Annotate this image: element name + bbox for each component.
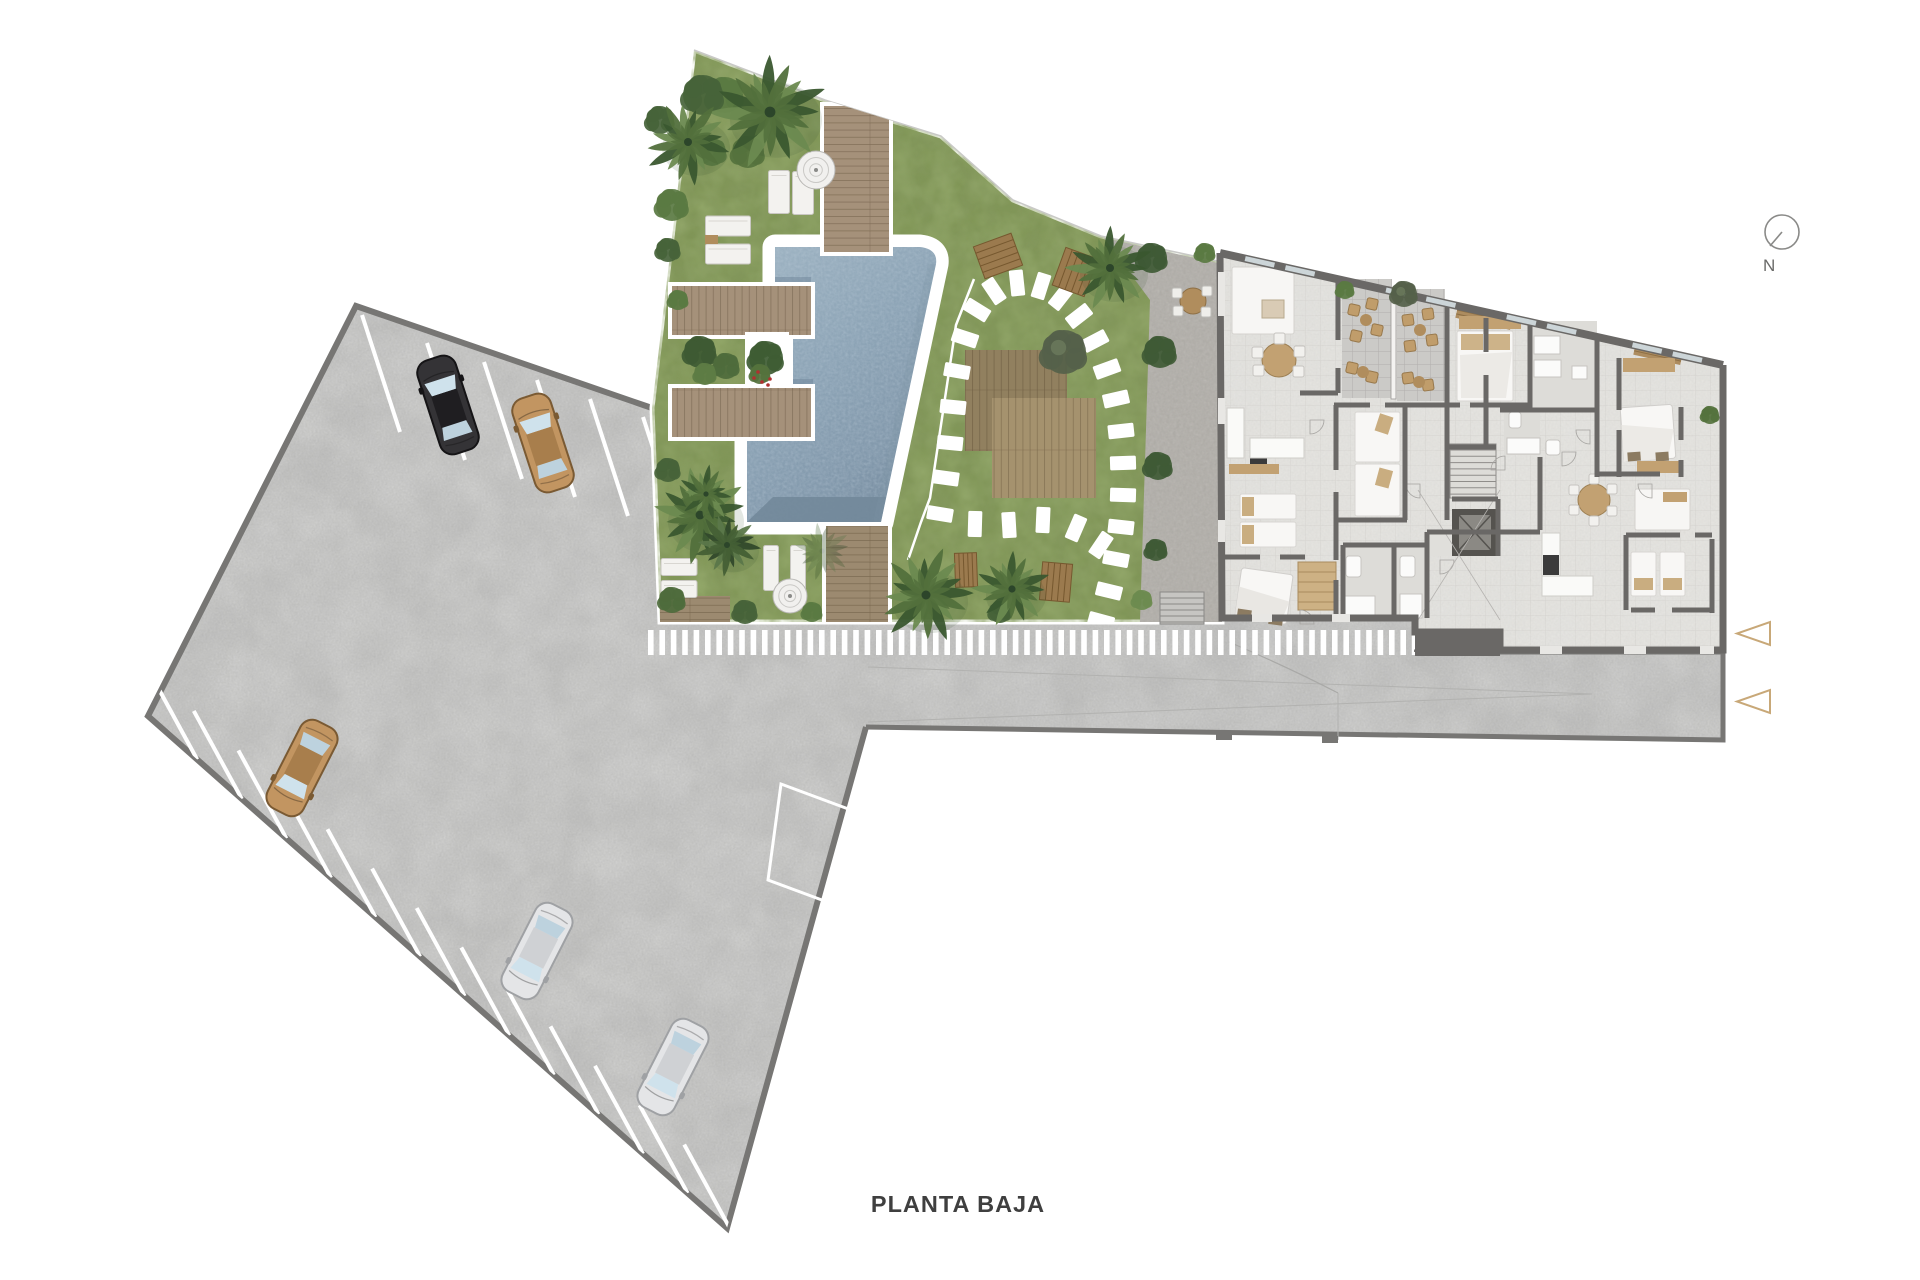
- svg-text:PLANTA BAJA: PLANTA BAJA: [871, 1191, 1045, 1217]
- svg-text:N: N: [1763, 256, 1775, 275]
